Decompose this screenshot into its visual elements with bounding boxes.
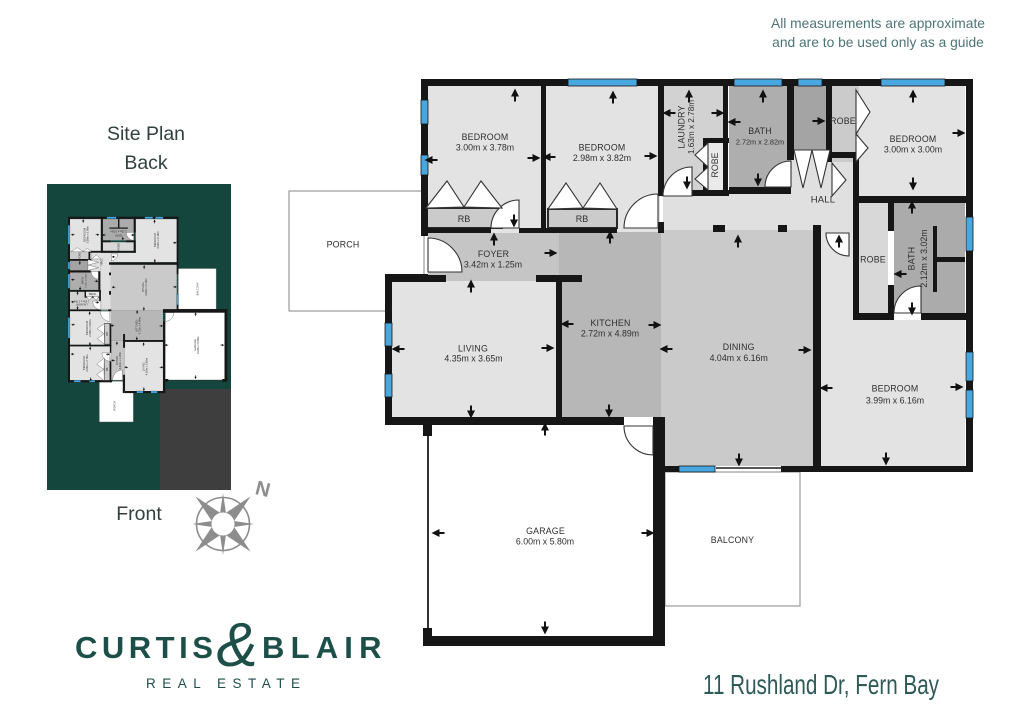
svg-text:BLAIR: BLAIR	[262, 630, 388, 665]
svg-text:N: N	[253, 477, 272, 502]
svg-text:BEDROOM: BEDROOM	[872, 384, 919, 394]
svg-text:FOYER: FOYER	[478, 249, 509, 259]
svg-text:PORCH: PORCH	[327, 240, 360, 250]
svg-text:ROBE: ROBE	[710, 152, 720, 177]
svg-text:1.63m x 2.78m: 1.63m x 2.78m	[687, 100, 696, 154]
svg-text:&: &	[216, 611, 257, 680]
svg-text:Site Plan: Site Plan	[107, 123, 185, 145]
svg-text:RB: RB	[576, 214, 589, 224]
svg-text:2.12m x 3.02m: 2.12m x 3.02m	[919, 229, 929, 287]
svg-text:BEDROOM: BEDROOM	[579, 143, 626, 153]
svg-text:RB: RB	[458, 214, 471, 224]
svg-text:11 Rushland Dr, Fern Bay: 11 Rushland Dr, Fern Bay	[703, 669, 939, 700]
svg-text:4.35m x 3.65m: 4.35m x 3.65m	[444, 354, 502, 364]
svg-text:LIVING: LIVING	[458, 344, 488, 354]
svg-text:GARAGE: GARAGE	[526, 526, 565, 536]
svg-text:ROBE: ROBE	[860, 255, 886, 265]
svg-text:2.72m x 2.82m: 2.72m x 2.82m	[736, 138, 784, 147]
svg-text:All measurements are approxima: All measurements are approximate	[771, 16, 985, 31]
svg-text:3.00m x 3.78m: 3.00m x 3.78m	[456, 143, 514, 153]
svg-text:BATH: BATH	[748, 126, 772, 136]
svg-text:BEDROOM: BEDROOM	[890, 134, 937, 144]
svg-text:ROBE: ROBE	[830, 116, 856, 126]
svg-text:BALCONY: BALCONY	[711, 535, 754, 545]
svg-text:BEDROOM: BEDROOM	[462, 132, 509, 142]
svg-text:4.04m x 6.16m: 4.04m x 6.16m	[710, 353, 768, 363]
svg-text:BATH: BATH	[907, 247, 917, 271]
svg-text:DINING: DINING	[723, 342, 755, 352]
svg-text:KITCHEN: KITCHEN	[590, 318, 630, 328]
svg-text:2.72m x 4.89m: 2.72m x 4.89m	[581, 329, 639, 339]
svg-text:3.99m x 6.16m: 3.99m x 6.16m	[866, 396, 924, 406]
svg-text:Front: Front	[116, 503, 162, 525]
svg-text:REAL ESTATE: REAL ESTATE	[146, 676, 307, 691]
svg-text:2.98m x 3.82m: 2.98m x 3.82m	[573, 153, 631, 163]
svg-text:and are to be used only as a g: and are to be used only as a guide	[772, 35, 984, 50]
svg-text:3.00m x 3.00m: 3.00m x 3.00m	[884, 145, 942, 155]
svg-text:Back: Back	[124, 152, 168, 174]
svg-text:HALL: HALL	[811, 195, 836, 206]
svg-text:LAUNDRY: LAUNDRY	[677, 105, 687, 148]
svg-text:CURTIS: CURTIS	[75, 630, 217, 665]
svg-text:6.00m x 5.80m: 6.00m x 5.80m	[516, 537, 574, 547]
svg-text:3.42m x 1.25m: 3.42m x 1.25m	[464, 260, 522, 270]
